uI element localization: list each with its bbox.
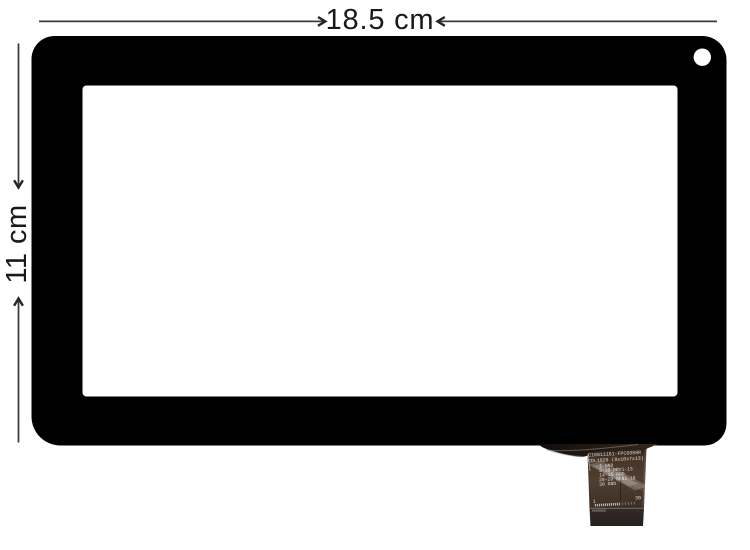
svg-text:11 cm: 11 cm [1, 204, 33, 283]
svg-text:30: 30 [635, 495, 641, 501]
svg-text:30 GND: 30 GND [599, 481, 616, 488]
svg-text:18.5 cm: 18.5 cm [326, 4, 435, 36]
